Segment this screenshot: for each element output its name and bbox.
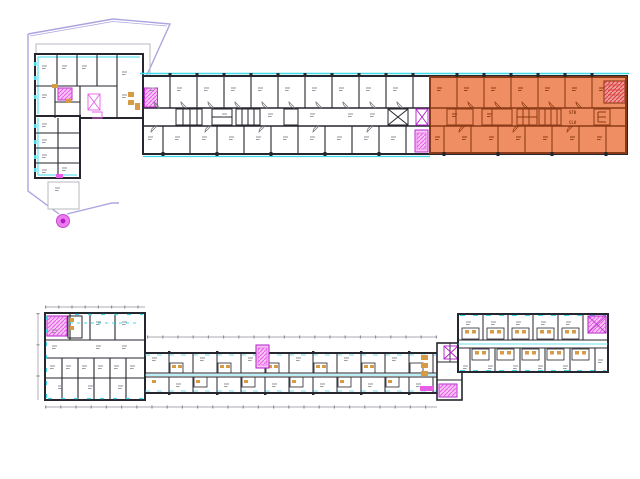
core-label-clo: CLO [569,120,577,125]
lower-main-bar [145,345,440,395]
wing-stair-icon [58,88,72,100]
canopy-outline [48,182,79,209]
right-wing-stair-icon [588,316,606,333]
lower-wing-stair-icon [47,316,67,336]
site-pin-marker [57,215,70,228]
floor-plan-drawing: STB CLO [0,0,640,479]
bar-magenta-elevator-icon [415,130,428,152]
upper-main-bar: STB CLO [128,73,629,157]
drawing-canvas: STB CLO [0,0,640,479]
bar-east-stair-icon [604,81,625,103]
lower-left-wing [45,313,145,400]
upper-plan: STB CLO [28,19,629,228]
lower-right-wing [458,314,608,372]
junction-stair-icon [439,384,457,397]
lower-bar-elevator-icon [256,345,269,368]
upper-left-wing [34,54,143,178]
orange-highlight-region [430,77,626,153]
core-label-stb: STB [569,110,577,115]
junction-fixtures [421,355,428,376]
junction-magenta-bar [420,386,433,391]
lower-plan [38,307,608,407]
